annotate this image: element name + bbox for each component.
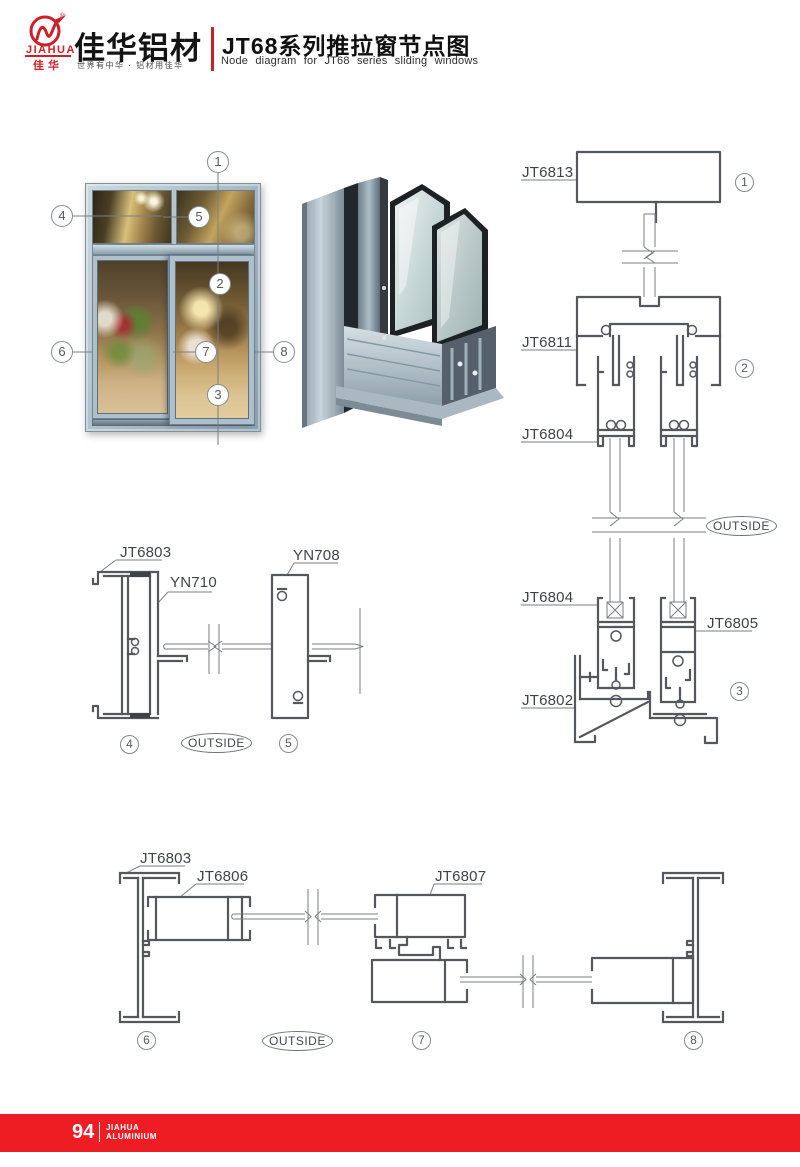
footer-brand-line2: ALUMINIUM — [106, 1132, 157, 1141]
callout-8: 8 — [273, 341, 295, 363]
label-yn708: YN708 — [293, 547, 340, 564]
node-circle-7: 7 — [412, 1031, 431, 1050]
node-circle-5: 5 — [279, 734, 298, 753]
logo-brand-cn: 佳华 — [33, 57, 63, 73]
label-jt6813: JT6813 — [522, 164, 573, 181]
vertical-section-diagram — [510, 140, 800, 770]
label-jt6811: JT6811 — [522, 334, 572, 351]
photo-callout-lines — [40, 145, 310, 455]
page-number: 94 — [72, 1121, 94, 1144]
registered-mark: ® — [60, 13, 65, 20]
label-jt6802: JT6802 — [522, 692, 573, 709]
callout-3: 3 — [207, 384, 229, 406]
callout-7: 7 — [195, 341, 217, 363]
outside-label-right: OUTSIDE — [706, 516, 777, 536]
node-circle-1: 1 — [735, 173, 754, 192]
node-circle-8: 8 — [684, 1031, 703, 1050]
profile-3d-render — [292, 168, 512, 443]
footer-brand-line1: JIAHUA — [106, 1123, 157, 1132]
outside-label-bottom: OUTSIDE — [262, 1031, 333, 1051]
label-jt6807: JT6807 — [435, 868, 486, 885]
label-jt6803-mid: JT6803 — [120, 544, 171, 561]
catalog-page: ® JIAHUA 佳华 佳华铝材 世界有中华 · 铝材用佳华 JT68系列推拉窗… — [0, 0, 800, 1167]
header-divider — [211, 27, 214, 71]
label-jt6804-upper: JT6804 — [522, 426, 573, 443]
outside-label-middle: OUTSIDE — [181, 733, 252, 753]
page-subtitle: Node diagram for JT68 series sliding win… — [221, 55, 478, 67]
label-jt6804-lower: JT6804 — [522, 589, 573, 606]
callout-5: 5 — [188, 206, 210, 228]
callout-2: 2 — [209, 273, 231, 295]
node-circle-4: 4 — [120, 735, 139, 754]
label-yn710: YN710 — [170, 574, 217, 591]
footer-separator — [99, 1122, 100, 1142]
callout-1: 1 — [207, 151, 229, 173]
node-circle-2: 2 — [735, 359, 754, 378]
footer-brand: JIAHUA ALUMINIUM — [106, 1123, 157, 1141]
label-jt6806: JT6806 — [197, 868, 248, 885]
callout-6: 6 — [51, 341, 73, 363]
callout-4: 4 — [51, 205, 73, 227]
label-jt6805: JT6805 — [707, 615, 758, 632]
company-slogan: 世界有中华 · 铝材用佳华 — [77, 60, 184, 71]
horizontal-section-diagram — [100, 845, 740, 1060]
node-circle-6: 6 — [137, 1031, 156, 1050]
label-jt6803-bottom: JT6803 — [140, 850, 191, 867]
node-circle-3: 3 — [730, 682, 749, 701]
